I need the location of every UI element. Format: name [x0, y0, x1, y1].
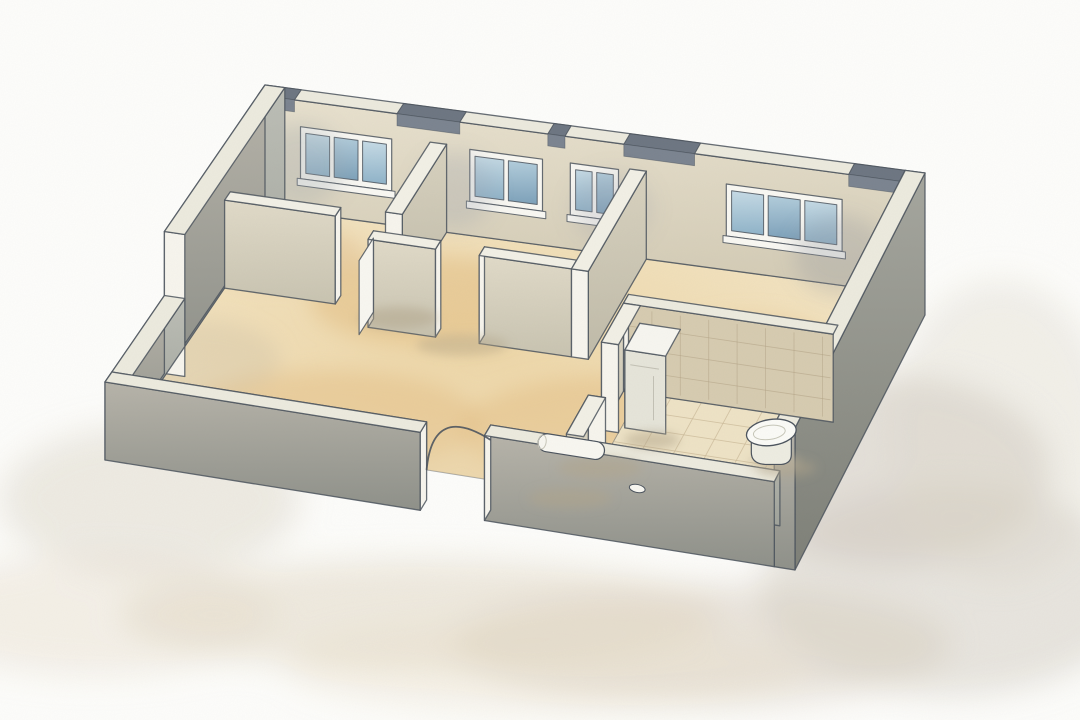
watercolor-floorplan-illustration: [0, 0, 1080, 720]
floorplan-scene: [0, 0, 1080, 720]
paper-grain-overlay: [0, 0, 1080, 720]
